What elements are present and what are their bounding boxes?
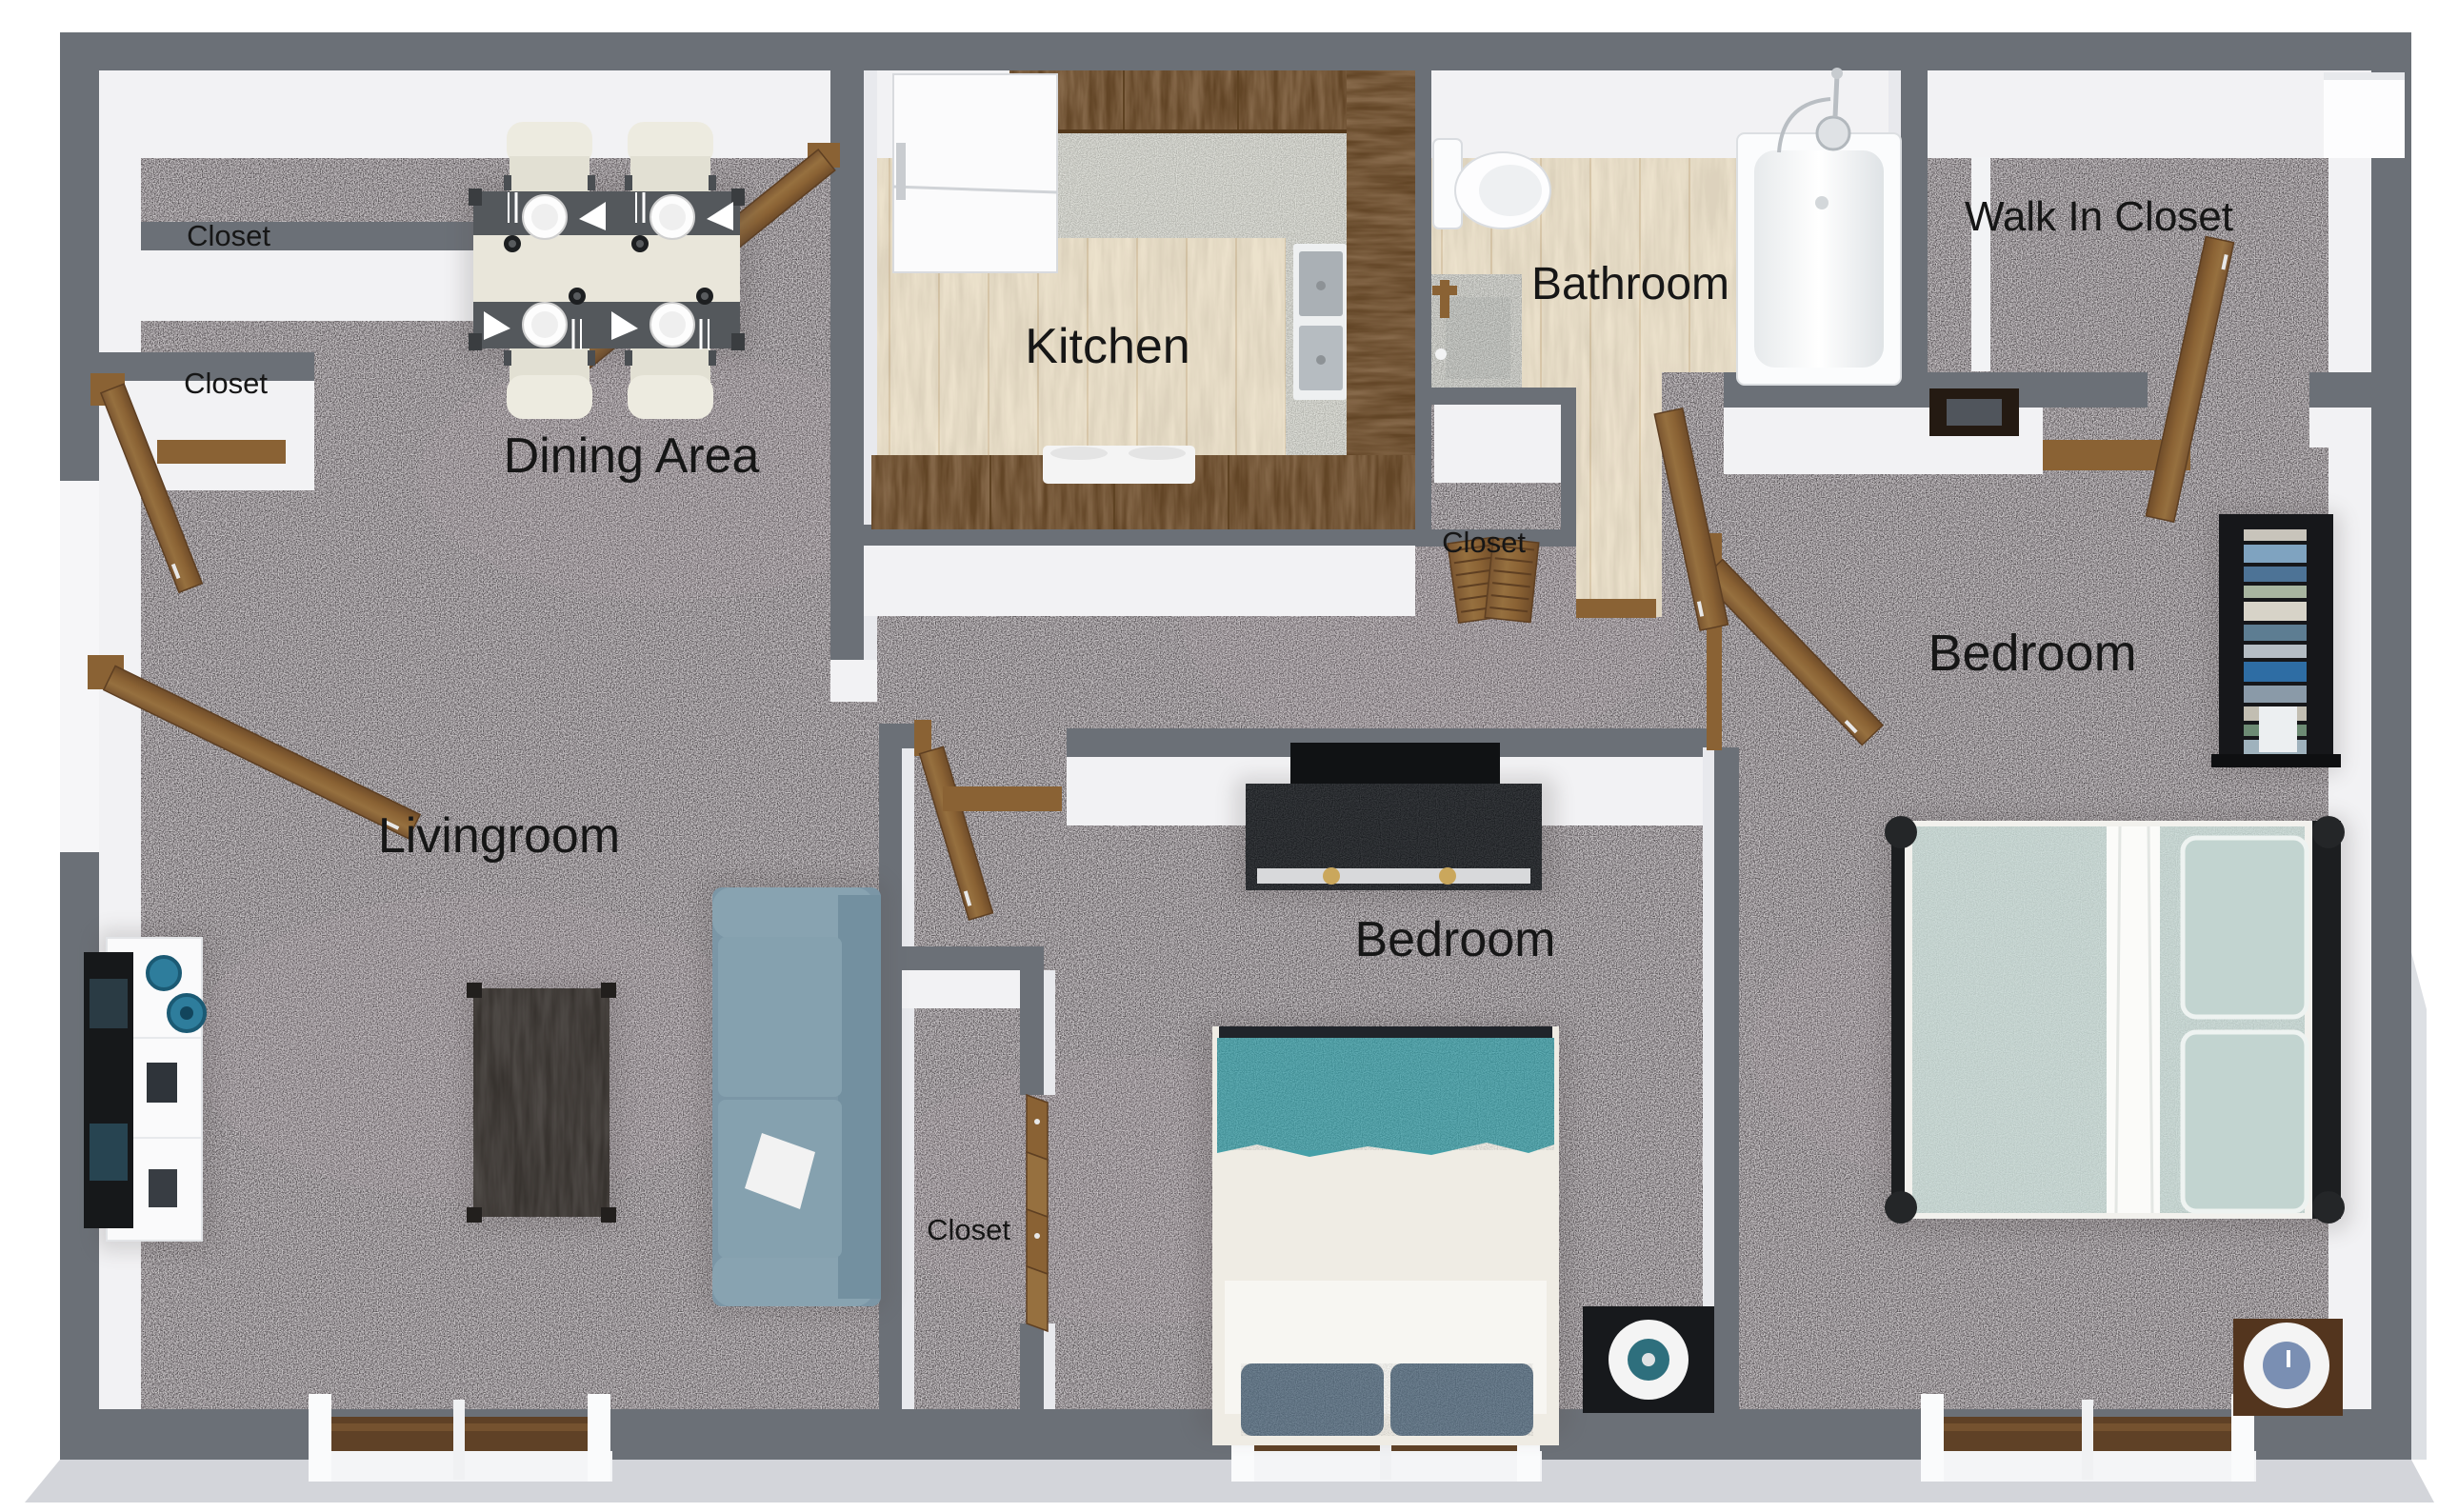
svg-text:Closet: Closet: [927, 1213, 1010, 1246]
svg-text:Bathroom: Bathroom: [1531, 259, 1729, 309]
svg-text:Closet: Closet: [1442, 526, 1526, 559]
svg-text:Livingroom: Livingroom: [378, 808, 620, 864]
svg-text:Closet: Closet: [187, 219, 270, 252]
svg-text:Dining Area: Dining Area: [504, 428, 760, 484]
svg-text:Bedroom: Bedroom: [1928, 625, 2136, 682]
svg-text:Walk In Closet: Walk In Closet: [1965, 193, 2233, 240]
svg-text:Closet: Closet: [184, 367, 268, 400]
svg-text:Bedroom: Bedroom: [1355, 912, 1556, 967]
svg-text:Kitchen: Kitchen: [1025, 319, 1189, 374]
